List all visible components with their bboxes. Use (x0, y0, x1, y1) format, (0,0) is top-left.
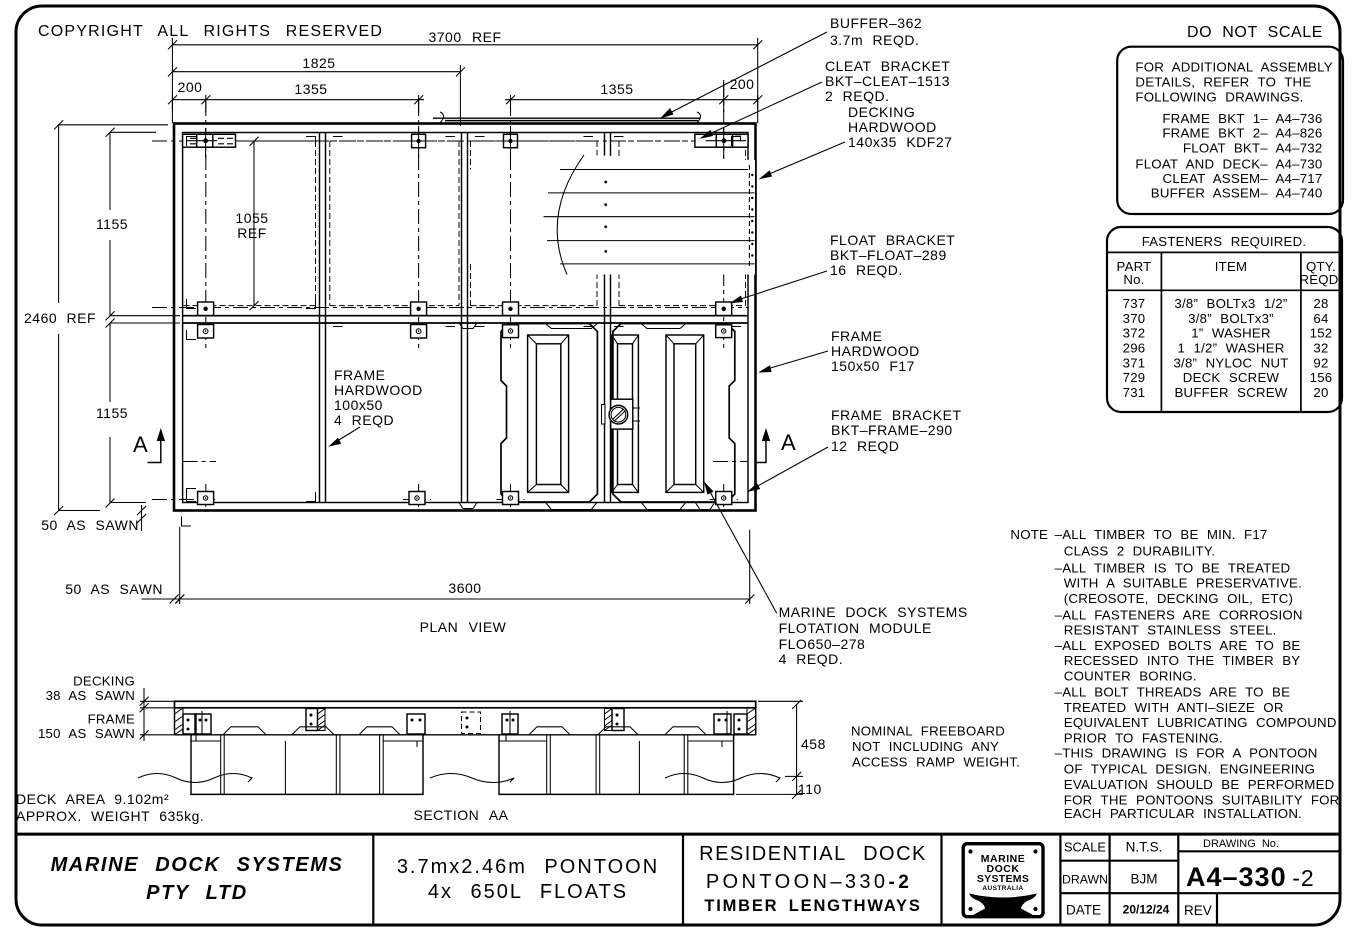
svg-text:200: 200 (730, 76, 755, 92)
svg-text:3.7mx2.46m PONTOON: 3.7mx2.46m PONTOON (397, 856, 659, 878)
svg-text:100x50: 100x50 (334, 397, 383, 413)
svg-text:2460 REF: 2460 REF (24, 310, 96, 326)
svg-text:NOT INCLUDING ANY: NOT INCLUDING ANY (852, 739, 999, 754)
svg-text:38 AS SAWN: 38 AS SAWN (46, 688, 135, 703)
svg-text:–ALL TIMBER IS TO BE TREATED: –ALL TIMBER IS TO BE TREATED (1055, 560, 1291, 575)
svg-text:1825: 1825 (302, 55, 335, 71)
svg-text:AUSTRALIA: AUSTRALIA (982, 885, 1023, 892)
svg-text:A: A (133, 432, 148, 457)
svg-text:CLEAT ASSEM– A4–717: CLEAT ASSEM– A4–717 (1163, 171, 1323, 186)
svg-text:RECESSED INTO THE TIMBER BY: RECESSED INTO THE TIMBER BY (1064, 653, 1301, 668)
svg-text:FRAME BRACKET: FRAME BRACKET (831, 407, 962, 423)
svg-text:4x 650L FLOATS: 4x 650L FLOATS (428, 881, 628, 903)
svg-text:1155: 1155 (96, 405, 128, 421)
svg-text:EACH PARTICULAR INSTALLATION.: EACH PARTICULAR INSTALLATION. (1064, 806, 1302, 821)
svg-text:APPROX. WEIGHT 635kg.: APPROX. WEIGHT 635kg. (16, 808, 204, 824)
svg-text:12 REQD: 12 REQD (831, 438, 899, 454)
svg-text:50 AS SAWN: 50 AS SAWN (65, 581, 163, 597)
svg-text:370: 370 (1123, 311, 1146, 326)
svg-text:WITH A SUITABLE PRESERVATIVE.: WITH A SUITABLE PRESERVATIVE. (1064, 576, 1302, 591)
svg-text:FLOAT BKT– A4–732: FLOAT BKT– A4–732 (1183, 141, 1323, 156)
svg-text:A: A (781, 430, 796, 455)
svg-text:–ALL BOLT THREADS ARE TO BE: –ALL BOLT THREADS ARE TO BE (1055, 685, 1291, 700)
svg-text:DRAWN: DRAWN (1062, 873, 1108, 887)
svg-text:NOMINAL FREEBOARD: NOMINAL FREEBOARD (851, 724, 1005, 739)
svg-text:HARDWOOD: HARDWOOD (831, 343, 920, 359)
svg-text:20/12/24: 20/12/24 (1123, 903, 1170, 917)
svg-text:FRAME BKT 2– A4–826: FRAME BKT 2– A4–826 (1162, 126, 1322, 141)
svg-text:140x35 KDF27: 140x35 KDF27 (848, 134, 952, 150)
svg-text:DECK SCREW: DECK SCREW (1183, 370, 1280, 385)
svg-text:DECK AREA 9.102m²: DECK AREA 9.102m² (16, 791, 169, 807)
svg-text:BUFFER SCREW: BUFFER SCREW (1175, 385, 1288, 400)
svg-text:SECTION AA: SECTION AA (413, 807, 508, 823)
svg-text:BJM: BJM (1131, 872, 1158, 887)
svg-text:REV: REV (1184, 903, 1212, 918)
svg-text:200: 200 (178, 79, 203, 95)
svg-text:731: 731 (1123, 385, 1146, 400)
svg-text:COPYRIGHT ALL RIGHTS RESERVED: COPYRIGHT ALL RIGHTS RESERVED (38, 23, 383, 40)
svg-text:FOR ADDITIONAL ASSEMBLY: FOR ADDITIONAL ASSEMBLY (1135, 59, 1332, 74)
svg-text:FRAME: FRAME (334, 367, 386, 383)
svg-text:372: 372 (1123, 326, 1146, 341)
svg-text:CLEAT BRACKET: CLEAT BRACKET (825, 58, 950, 74)
svg-text:3600: 3600 (448, 580, 481, 596)
svg-text:SYSTEMS: SYSTEMS (977, 873, 1029, 885)
svg-text:64: 64 (1313, 311, 1328, 326)
svg-text:OF TYPICAL DESIGN. ENGINEERING: OF TYPICAL DESIGN. ENGINEERING (1064, 762, 1315, 777)
svg-text:BKT–FRAME–290: BKT–FRAME–290 (831, 422, 953, 438)
svg-text:EQUIVALENT LUBRICATING COMPOUN: EQUIVALENT LUBRICATING COMPOUND (1064, 715, 1337, 730)
svg-text:ACCESS RAMP WEIGHT.: ACCESS RAMP WEIGHT. (852, 755, 1020, 770)
svg-text:REQD.: REQD. (1299, 272, 1342, 287)
svg-text:FRAME: FRAME (831, 328, 883, 344)
svg-text:PRIOR TO FASTENING.: PRIOR TO FASTENING. (1064, 730, 1223, 745)
svg-text:REF: REF (237, 225, 267, 241)
svg-text:A4–330 -2: A4–330 -2 (1186, 862, 1315, 892)
svg-text:371: 371 (1123, 355, 1146, 370)
svg-text:–ALL FASTENERS ARE CORROSION: –ALL FASTENERS ARE CORROSION (1055, 607, 1303, 622)
svg-text:EVALUATION SHOULD BE PERFORMED: EVALUATION SHOULD BE PERFORMED (1064, 777, 1335, 792)
svg-text:32: 32 (1313, 340, 1328, 355)
svg-text:–THIS DRAWING IS FOR A PONTOON: –THIS DRAWING IS FOR A PONTOON (1055, 746, 1318, 761)
svg-text:DETAILS, REFER TO THE: DETAILS, REFER TO THE (1135, 75, 1311, 90)
svg-text:PTY LTD: PTY LTD (146, 882, 248, 904)
svg-text:458: 458 (801, 736, 826, 752)
svg-text:HARDWOOD: HARDWOOD (334, 382, 423, 398)
svg-text:1155: 1155 (96, 216, 128, 232)
svg-text:110: 110 (798, 781, 822, 797)
svg-text:RESISTANT STAINLESS STEEL.: RESISTANT STAINLESS STEEL. (1064, 623, 1277, 638)
svg-text:NOTE: NOTE (1010, 527, 1048, 542)
svg-text:COUNTER BORING.: COUNTER BORING. (1064, 669, 1197, 684)
svg-text:FASTENERS REQUIRED.: FASTENERS REQUIRED. (1142, 234, 1307, 249)
svg-text:MARINE DOCK SYSTEMS: MARINE DOCK SYSTEMS (779, 604, 968, 620)
svg-text:PLAN VIEW: PLAN VIEW (420, 619, 507, 635)
svg-text:296: 296 (1123, 340, 1146, 355)
svg-text:3/8” NYLOC NUT: 3/8” NYLOC NUT (1173, 355, 1288, 370)
svg-text:156: 156 (1310, 370, 1333, 385)
svg-text:N.T.S.: N.T.S. (1126, 840, 1163, 855)
svg-text:DO NOT SCALE: DO NOT SCALE (1187, 24, 1323, 41)
svg-text:SCALE: SCALE (1064, 840, 1106, 855)
svg-text:3700 REF: 3700 REF (428, 29, 501, 45)
svg-text:16 REQD.: 16 REQD. (830, 262, 903, 278)
svg-text:4 REQD: 4 REQD (334, 412, 394, 428)
svg-text:TIMBER LENGTHWAYS: TIMBER LENGTHWAYS (704, 897, 921, 915)
svg-text:2 REQD.: 2 REQD. (825, 88, 890, 104)
svg-text:150x50 F17: 150x50 F17 (831, 358, 915, 374)
svg-text:150 AS SAWN: 150 AS SAWN (38, 726, 135, 741)
svg-text:PONTOON–330-2: PONTOON–330-2 (706, 871, 912, 893)
svg-text:FRAME BKT 1– A4–736: FRAME BKT 1– A4–736 (1162, 111, 1322, 126)
svg-text:1355: 1355 (294, 81, 327, 97)
svg-text:28: 28 (1313, 296, 1328, 311)
svg-text:BKT–FLOAT–289: BKT–FLOAT–289 (830, 247, 947, 263)
svg-text:3.7m REQD.: 3.7m REQD. (830, 32, 919, 48)
svg-text:DRAWING No.: DRAWING No. (1203, 838, 1279, 850)
svg-text:1355: 1355 (600, 81, 633, 97)
svg-text:RESIDENTIAL DOCK: RESIDENTIAL DOCK (699, 843, 927, 865)
svg-text:1055: 1055 (235, 210, 268, 226)
svg-text:729: 729 (1123, 370, 1146, 385)
svg-text:DECKING: DECKING (848, 104, 915, 120)
svg-text:(CREOSOTE, DECKING OIL, ETC): (CREOSOTE, DECKING OIL, ETC) (1064, 591, 1293, 606)
svg-text:4 REQD.: 4 REQD. (779, 651, 844, 667)
svg-text:FLO650–278: FLO650–278 (779, 636, 866, 652)
svg-text:BKT–CLEAT–1513: BKT–CLEAT–1513 (825, 73, 950, 89)
svg-text:–ALL TIMBER TO BE MIN. F17: –ALL TIMBER TO BE MIN. F17 (1055, 527, 1268, 542)
svg-text:ITEM: ITEM (1215, 259, 1248, 274)
svg-text:No.: No. (1123, 272, 1144, 287)
svg-text:FOLLOWING DRAWINGS.: FOLLOWING DRAWINGS. (1135, 89, 1303, 104)
svg-text:1 1/2” WASHER: 1 1/2” WASHER (1177, 340, 1284, 355)
svg-text:92: 92 (1313, 355, 1328, 370)
svg-text:–ALL EXPOSED BOLTS ARE TO BE: –ALL EXPOSED BOLTS ARE TO BE (1055, 638, 1301, 653)
svg-text:50 AS SAWN: 50 AS SAWN (41, 517, 139, 533)
svg-text:3/8” BOLTx3”: 3/8” BOLTx3” (1188, 311, 1274, 326)
svg-text:1” WASHER: 1” WASHER (1191, 326, 1271, 341)
svg-text:152: 152 (1310, 326, 1333, 341)
svg-text:FLOAT BRACKET: FLOAT BRACKET (830, 232, 955, 248)
svg-text:3/8” BOLTx3 1/2”: 3/8” BOLTx3 1/2” (1174, 296, 1287, 311)
svg-text:TREATED WITH ANTI–SIEZE OR: TREATED WITH ANTI–SIEZE OR (1064, 700, 1284, 715)
svg-text:DECKING: DECKING (73, 674, 135, 689)
svg-text:20: 20 (1313, 385, 1328, 400)
svg-text:HARDWOOD: HARDWOOD (848, 119, 937, 135)
svg-text:CLASS 2 DURABILITY.: CLASS 2 DURABILITY. (1064, 543, 1215, 558)
svg-text:FRAME: FRAME (88, 712, 135, 727)
svg-text:DATE: DATE (1066, 903, 1101, 918)
svg-text:BUFFER–362: BUFFER–362 (830, 15, 922, 31)
svg-text:MARINE DOCK SYSTEMS: MARINE DOCK SYSTEMS (51, 854, 344, 876)
svg-text:FLOTATION MODULE: FLOTATION MODULE (779, 620, 932, 636)
svg-text:BUFFER ASSEM– A4–740: BUFFER ASSEM– A4–740 (1151, 186, 1323, 201)
svg-text:FLOAT AND DECK– A4–730: FLOAT AND DECK– A4–730 (1135, 157, 1322, 172)
svg-text:737: 737 (1123, 296, 1146, 311)
